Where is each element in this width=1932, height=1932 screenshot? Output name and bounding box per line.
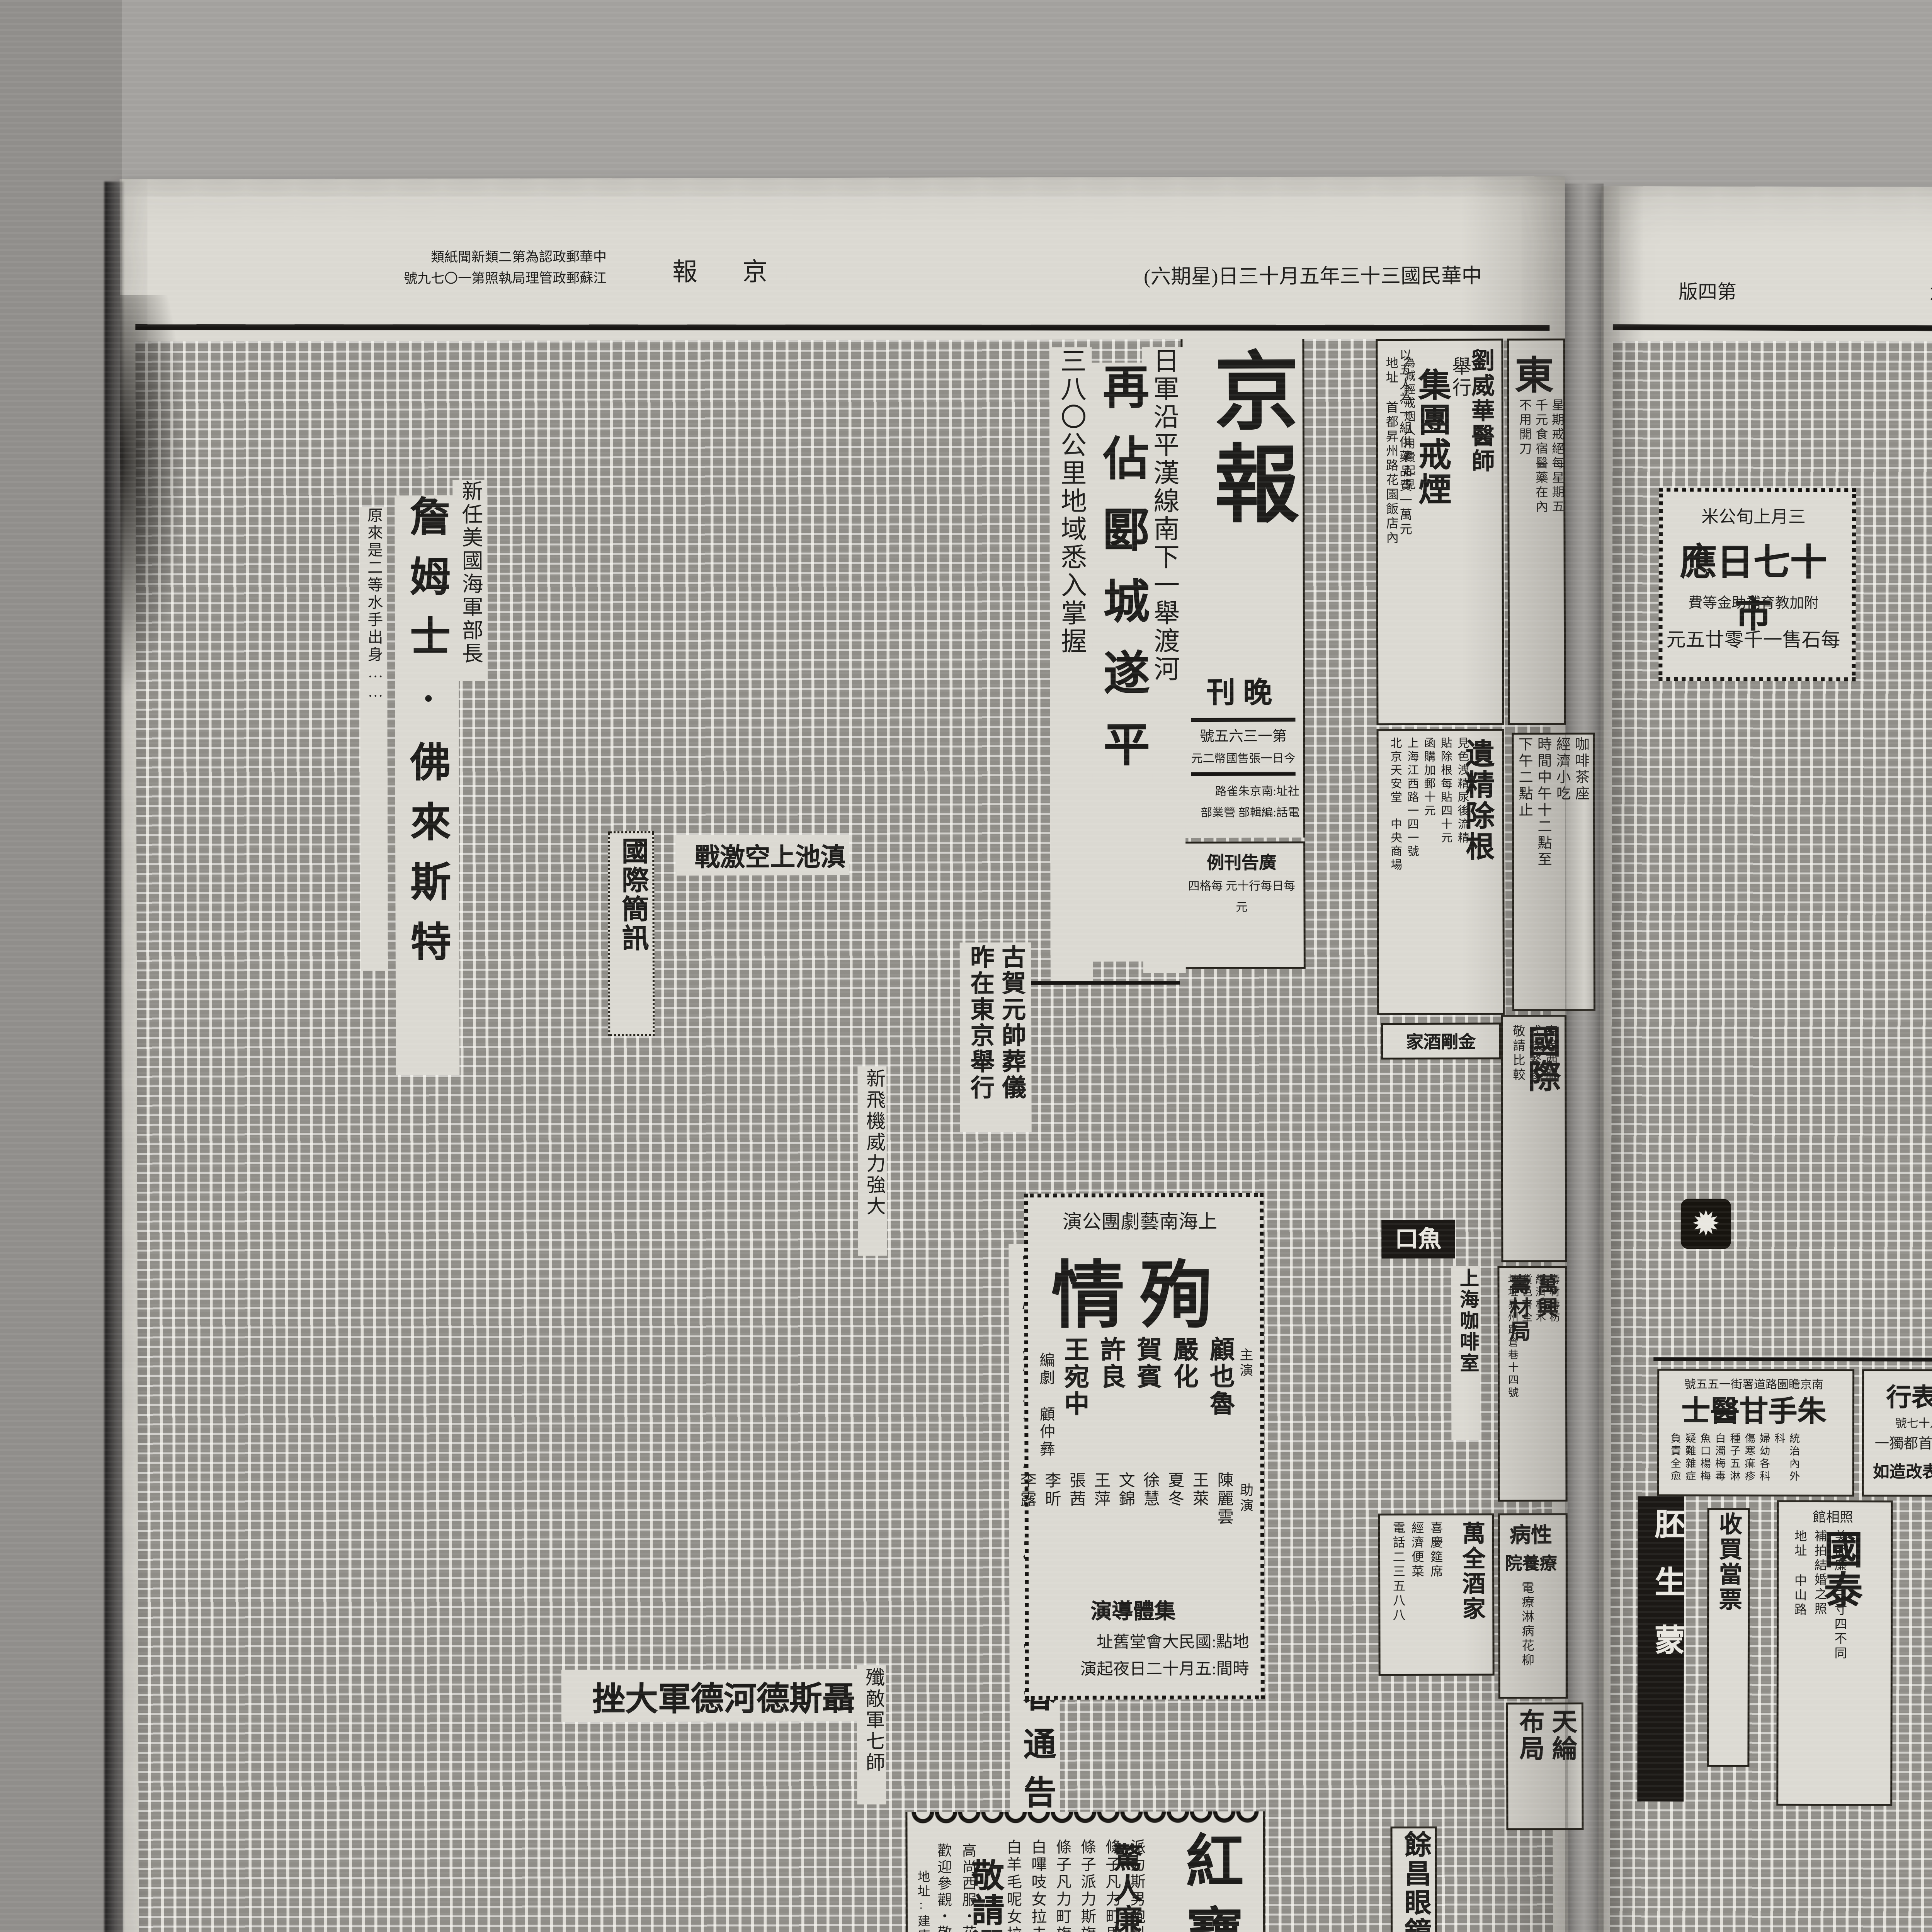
rice-notice: 三月上旬公米 十七日應市 附加教育補助金等費 每石售一千零廿五元	[1658, 488, 1856, 681]
page-number: 第四版	[1679, 275, 1736, 304]
fold-shading	[1598, 186, 1644, 1932]
dniester-kicker: 殲敵軍七師	[857, 1665, 886, 1804]
guotai-sub: 照相館	[1782, 1508, 1883, 1527]
drama-venue: 地點:國民大會堂舊址	[1036, 1630, 1249, 1653]
page-gutter	[1565, 184, 1604, 1932]
left-margin	[0, 0, 122, 1932]
dateline: 中華民國三十三年五月十三日(星期六)	[970, 262, 1482, 292]
hongbao-lines: 高尚西服・花色衆多 歡迎參觀・敬請比較	[931, 1843, 981, 1932]
drama-title: 殉情	[1036, 1236, 1245, 1342]
hongbao-ad: 紅寶公司 驚人廉價 派力斯男袍料 條子凡力町男袍料 條子派力斯旗袍料 條子凡力町…	[905, 1811, 1265, 1932]
drama-writer: 編劇 顧仲彝	[1036, 1352, 1056, 1526]
ad-rates-note: 每日每行十元 每格四元	[1187, 878, 1296, 920]
drama-ad: 上海南藝劇團公演 殉情 主演 顧也魯 嚴化 賀賓 許良 王宛中 助演 陳麗雲 王…	[1024, 1193, 1265, 1700]
drama-troupe: 上海南藝劇團公演	[1032, 1205, 1248, 1234]
drama-support-label: 助演	[1237, 1483, 1255, 1522]
masthead-telephone: 電話:編輯部 營業部	[1187, 805, 1299, 825]
rice-line4: 每石售一千零廿五元	[1666, 623, 1840, 652]
drama-direction: 集體導演	[1040, 1595, 1175, 1626]
hongbao-address: 地址:建康路商場	[912, 1870, 929, 1932]
masthead-price: 今日一張售國幣二元	[1185, 749, 1301, 767]
weekday: 星期六	[1930, 276, 1932, 305]
pawn-buy-ad: 收買當票	[1707, 1508, 1749, 1767]
scan-corner-blot	[120, 295, 186, 701]
peisheng-title: 胚生蒙	[1643, 1508, 1684, 1790]
quit-smoking-address: 地址 首都昇州路花園飯店內	[1380, 356, 1397, 704]
yijing-note: 見色洩精尿後流精 貼除根每貼四十元 函購加郵十元 上海江西路一四一號 北京天安堂…	[1384, 737, 1469, 1003]
right-page: 第四版 星期六 京 報 中華民國三十三年五月十三日 人面獸心! 老郵工色令智昏 …	[1598, 186, 1932, 1932]
star-ornament-icon: ✹	[1681, 1199, 1731, 1249]
yukou-ad: 魚口	[1381, 1220, 1455, 1259]
masthead-title: 京報	[1200, 347, 1295, 533]
hongbao-name: 紅寶公司	[1170, 1831, 1246, 1932]
navy-headline: 詹姆士·佛來斯特	[395, 495, 460, 1075]
section-intl-briefs: 國際簡訊	[608, 831, 655, 1036]
guotai-note: 美而廉 三寸四不同 補拍結婚之照 地址 中山路	[1786, 1529, 1847, 1792]
yuchang-ad: 餘昌眼鏡	[1390, 1827, 1437, 1932]
huilong-note1: 修理鐘表首飾 首都獨一	[1868, 1433, 1932, 1454]
dniester-headline: 聶斯德河德軍大挫	[561, 1669, 859, 1722]
wavy-border-top	[911, 1811, 1259, 1824]
header-rule	[135, 324, 1549, 330]
masthead-issue: 第一三六五號	[1187, 726, 1299, 747]
ad-rates-box: 廣告刊例 每日每行十元 每格四元	[1182, 841, 1306, 969]
huilong-title: 惠龍鐘表行	[1868, 1377, 1932, 1414]
drama-time: 時間:五月十二日夜起演	[1037, 1657, 1249, 1680]
lead-headline: 再佔郾城遂平	[1084, 362, 1153, 961]
header-rule	[1613, 324, 1932, 335]
rice-line3: 附加教育補助金等費	[1667, 592, 1840, 614]
drama-lead-label: 主演	[1236, 1348, 1254, 1386]
hongbao-items: 派力斯男袍料 條子凡力町男袍料 條子派力斯旗袍料 條子凡力町旗袍料 白嗶吱女拉夫…	[1000, 1838, 1149, 1932]
zhu-address: 南京瞻園路道署街一五五號	[1663, 1374, 1845, 1392]
fold-shading	[1461, 176, 1569, 1932]
zhu-doctor-ad: 南京瞻園路道署街一五五號 朱手甘醫士 統治內外科 婦幼各科 傷寒痲疹 種子五淋 …	[1657, 1369, 1855, 1497]
quit-smoking-title: 集團戒煙	[1408, 368, 1452, 580]
masthead-edition: 晚刊	[1195, 672, 1291, 713]
left-page: 中華郵政認為第二類新聞紙類 江蘇郵政管理局執照第一〇七九號 京 報 中華民國三十…	[120, 176, 1569, 1932]
rice-line1: 三月上旬公米	[1667, 503, 1840, 529]
navy-deck: 原來是二等水手出身……	[360, 507, 388, 971]
huilong-watch-ad: 惠龍鐘表行 地址:太平路八十七號 修理鐘表首飾 首都獨一 舊鐘修理 壞表改造如新	[1862, 1369, 1932, 1497]
peisheng-ad: 胚生蒙	[1637, 1496, 1684, 1801]
huilong-address: 地址:太平路八十七號	[1868, 1413, 1932, 1431]
guotai-photo-ad: 照相館 國泰 美而廉 三寸四不同 補拍結婚之照 地址 中山路	[1776, 1500, 1893, 1806]
new-plane-headline: 新飛機威力強大	[857, 1066, 887, 1256]
wanquan-note: 喜慶筵席 經濟便菜 電話二三五八八	[1386, 1521, 1443, 1664]
masthead: 京報 晚刊 第一三六五號 今日一張售國幣二元 社址:南京朱雀路 電話:編輯部 營…	[1180, 339, 1305, 838]
masthead-address: 社址:南京朱雀路	[1187, 784, 1299, 804]
huilong-note2: 舊鐘修理 壞表改造如新	[1868, 1460, 1932, 1507]
masthead-rule	[1191, 718, 1295, 721]
ad-rates-title: 廣告刊例	[1187, 849, 1296, 875]
lead-deck: 三八〇公里地域悉入掌握	[1049, 347, 1092, 985]
newspaper-scan: 中華郵政認為第二類新聞紙類 江蘇郵政管理局執照第一〇七九號 京 報 中華民國三十…	[0, 0, 1932, 1932]
zhu-title: 朱手甘醫士	[1663, 1390, 1845, 1431]
koga-funeral-headline: 古賀元帥葬儀 昨在東京舉行	[960, 942, 1031, 1132]
air-battle-headline: 滇池上空激戰	[675, 835, 849, 876]
drama-lead-cast: 顧也魯 嚴化 賀賓 許良 王宛中	[1055, 1336, 1237, 1468]
masthead-rule2	[1191, 772, 1296, 775]
postal-registration: 中華郵政認為第二類新聞紙類 江蘇郵政管理局執照第一〇七九號	[220, 248, 607, 289]
paper-name-small: 京 報	[672, 251, 787, 288]
zhu-specialties: 統治內外科 婦幼各科 傷寒痲疹 種子五淋 白濁梅毒 魚口楊梅 疑難雜症 負責全愈	[1665, 1432, 1799, 1487]
